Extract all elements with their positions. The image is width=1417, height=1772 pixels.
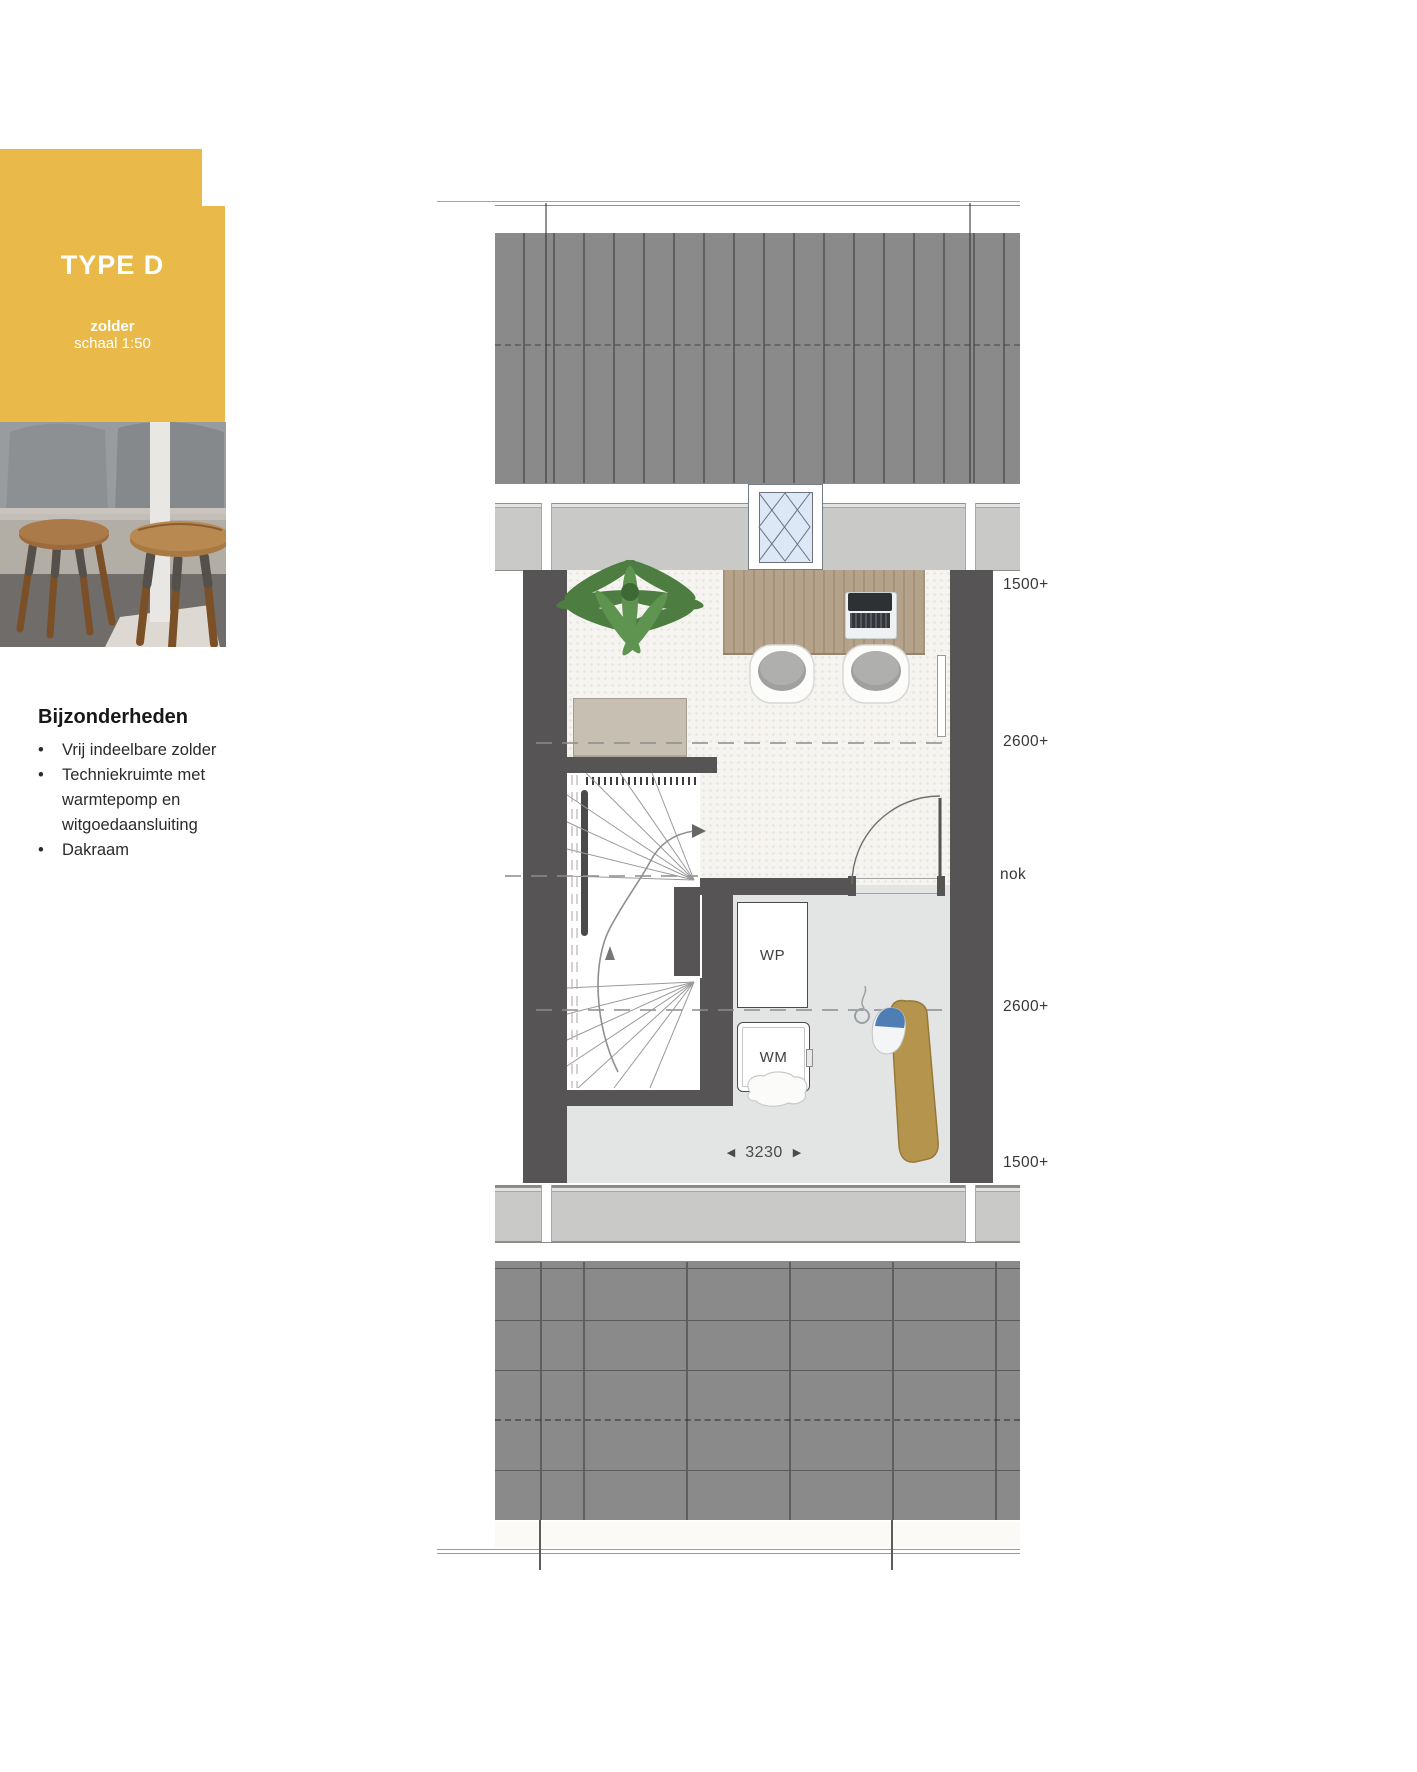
stair-up-arrow-icon bbox=[605, 946, 615, 960]
door-swing bbox=[852, 796, 940, 884]
brochure-page: TYPE D zolder schaal 1:50 bbox=[0, 0, 1417, 1772]
plant bbox=[555, 554, 704, 659]
floor-plan: WP WM ◀ 3230 ▶ 1500+ 2600+ nok 2600+ 150… bbox=[0, 0, 1417, 1772]
roof-window-glazing bbox=[759, 493, 810, 561]
plan-linework bbox=[0, 0, 1417, 1772]
stair-direction-arrow-icon bbox=[692, 824, 706, 838]
stair-guide-dashes bbox=[572, 775, 577, 1088]
desk-chairs bbox=[750, 645, 909, 703]
laundry-pile bbox=[748, 1072, 807, 1106]
stair-treads bbox=[567, 773, 694, 1088]
ironing-board bbox=[855, 986, 938, 1162]
